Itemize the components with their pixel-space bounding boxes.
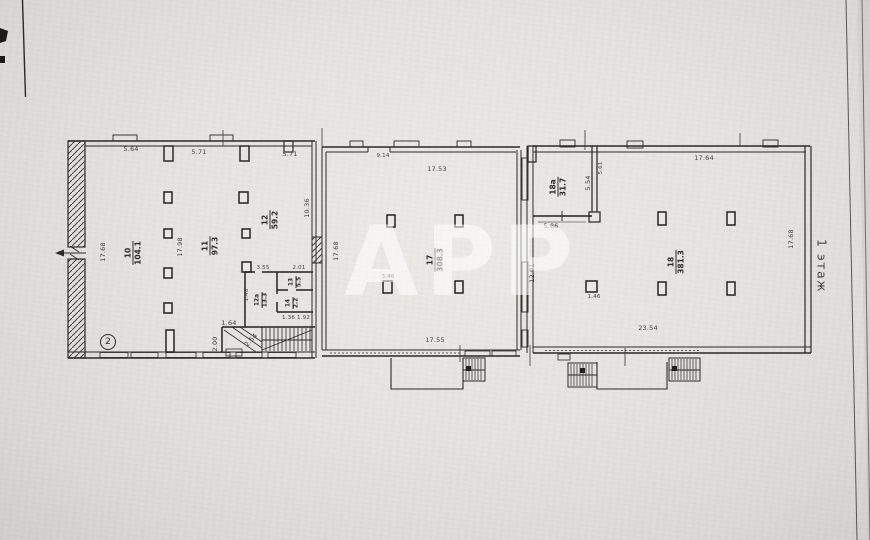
room-label-10: 10 104.1 — [124, 241, 143, 265]
dimension-label: 2.01 — [292, 265, 305, 271]
room-label-18: 18 381.3 — [667, 250, 686, 274]
dimension-label: 17.68 — [787, 229, 795, 249]
middle-section-columns — [383, 215, 463, 293]
dimension-label: 23.54 — [638, 324, 658, 332]
dimension-label: 5.71 — [191, 148, 206, 156]
dimension-label: 17.68 — [99, 242, 107, 262]
left-section-walls — [55, 135, 322, 358]
entrance-porches — [391, 358, 700, 389]
dimension-label: 1.48 — [244, 288, 250, 301]
dimension-label: 17.55 — [425, 336, 445, 344]
room-label-14: 14 2.2 — [286, 297, 301, 309]
dimension-label: 10.36 — [303, 198, 311, 218]
dimension-label: 5.54 — [584, 175, 592, 190]
dimension-label: 3.46 — [381, 274, 394, 280]
dimension-label: 12.01 — [528, 263, 536, 283]
dimension-label: 17.64 — [694, 154, 714, 162]
dimension-label: 5.71 — [282, 150, 297, 158]
dimension-label: 1.36 1.92 — [282, 315, 310, 321]
right-section-columns — [586, 212, 735, 295]
entrance-number-badge: 2 — [100, 334, 116, 350]
dimension-label: 17.68 — [332, 241, 340, 261]
left-section-columns — [164, 192, 251, 352]
dimension-label: 5.61 — [598, 161, 604, 174]
floor-caption: 1 этаж — [815, 239, 830, 293]
room-label-12a: 12а 13.3 — [255, 292, 270, 308]
dimension-label: 1.46 — [587, 294, 600, 300]
room-label-18a: 18а 31.7 — [549, 177, 568, 197]
dimension-ticks — [223, 128, 740, 366]
bottom-windows — [100, 353, 296, 358]
room-label-11: 11 97.3 — [201, 237, 220, 256]
dimension-label: 1.64 — [221, 319, 236, 327]
dimension-label: 17.98 — [176, 237, 184, 257]
room-label-13: 13 5.5 — [289, 276, 304, 288]
dimension-label: 3.55 — [256, 265, 269, 271]
dimension-label: 17.53 — [427, 165, 447, 173]
dimension-label: 5.64 — [123, 145, 138, 153]
dimension-label: 2.00 — [211, 336, 219, 351]
dimension-label: 9.14 — [376, 153, 389, 159]
room-label-12: 12 59.2 — [261, 211, 280, 230]
dimension-label: 5.86 — [543, 222, 558, 230]
room-label-17: 17 308.3 — [426, 248, 445, 272]
photographed-floor-plan-sheet: 10 104.1 11 97.3 12 59.2 12а 13.3 13 5.5… — [0, 0, 870, 540]
entrance-arrow — [55, 246, 86, 260]
